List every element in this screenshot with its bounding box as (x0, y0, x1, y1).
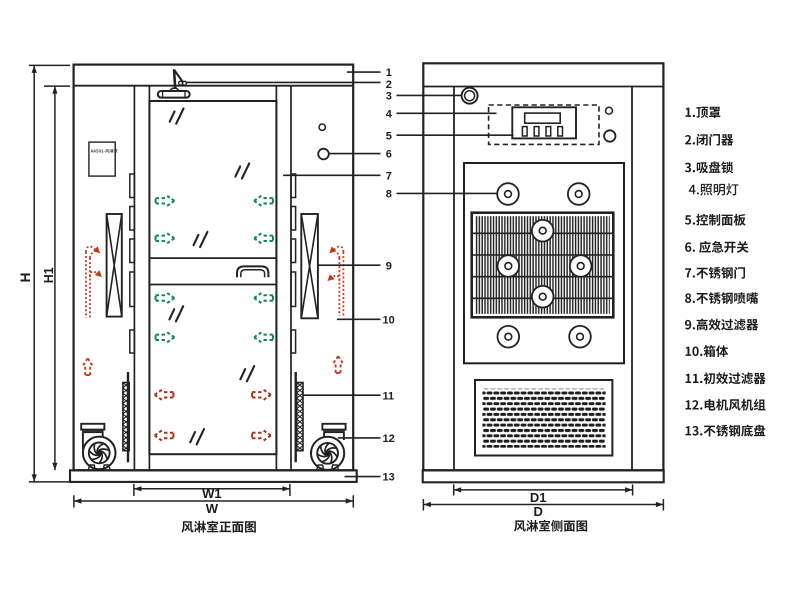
svg-text:H: H (18, 273, 33, 283)
svg-text:12: 12 (383, 433, 395, 445)
svg-text:D1: D1 (530, 490, 547, 505)
svg-text:4: 4 (386, 108, 393, 120)
svg-text:W1: W1 (202, 486, 222, 501)
svg-text:7: 7 (386, 170, 392, 182)
svg-text:W: W (206, 501, 219, 516)
svg-text:5: 5 (386, 130, 392, 142)
svg-text:H1: H1 (42, 267, 56, 283)
svg-text:10: 10 (383, 314, 395, 326)
svg-text:3: 3 (386, 91, 392, 103)
svg-text:9: 9 (386, 260, 392, 272)
svg-text:13: 13 (383, 472, 395, 484)
svg-text:8: 8 (386, 189, 392, 201)
svg-text:1: 1 (386, 67, 392, 79)
svg-text:6: 6 (386, 149, 392, 161)
svg-text:11: 11 (383, 390, 395, 402)
svg-text:2: 2 (386, 79, 392, 91)
svg-text:D: D (534, 504, 543, 519)
